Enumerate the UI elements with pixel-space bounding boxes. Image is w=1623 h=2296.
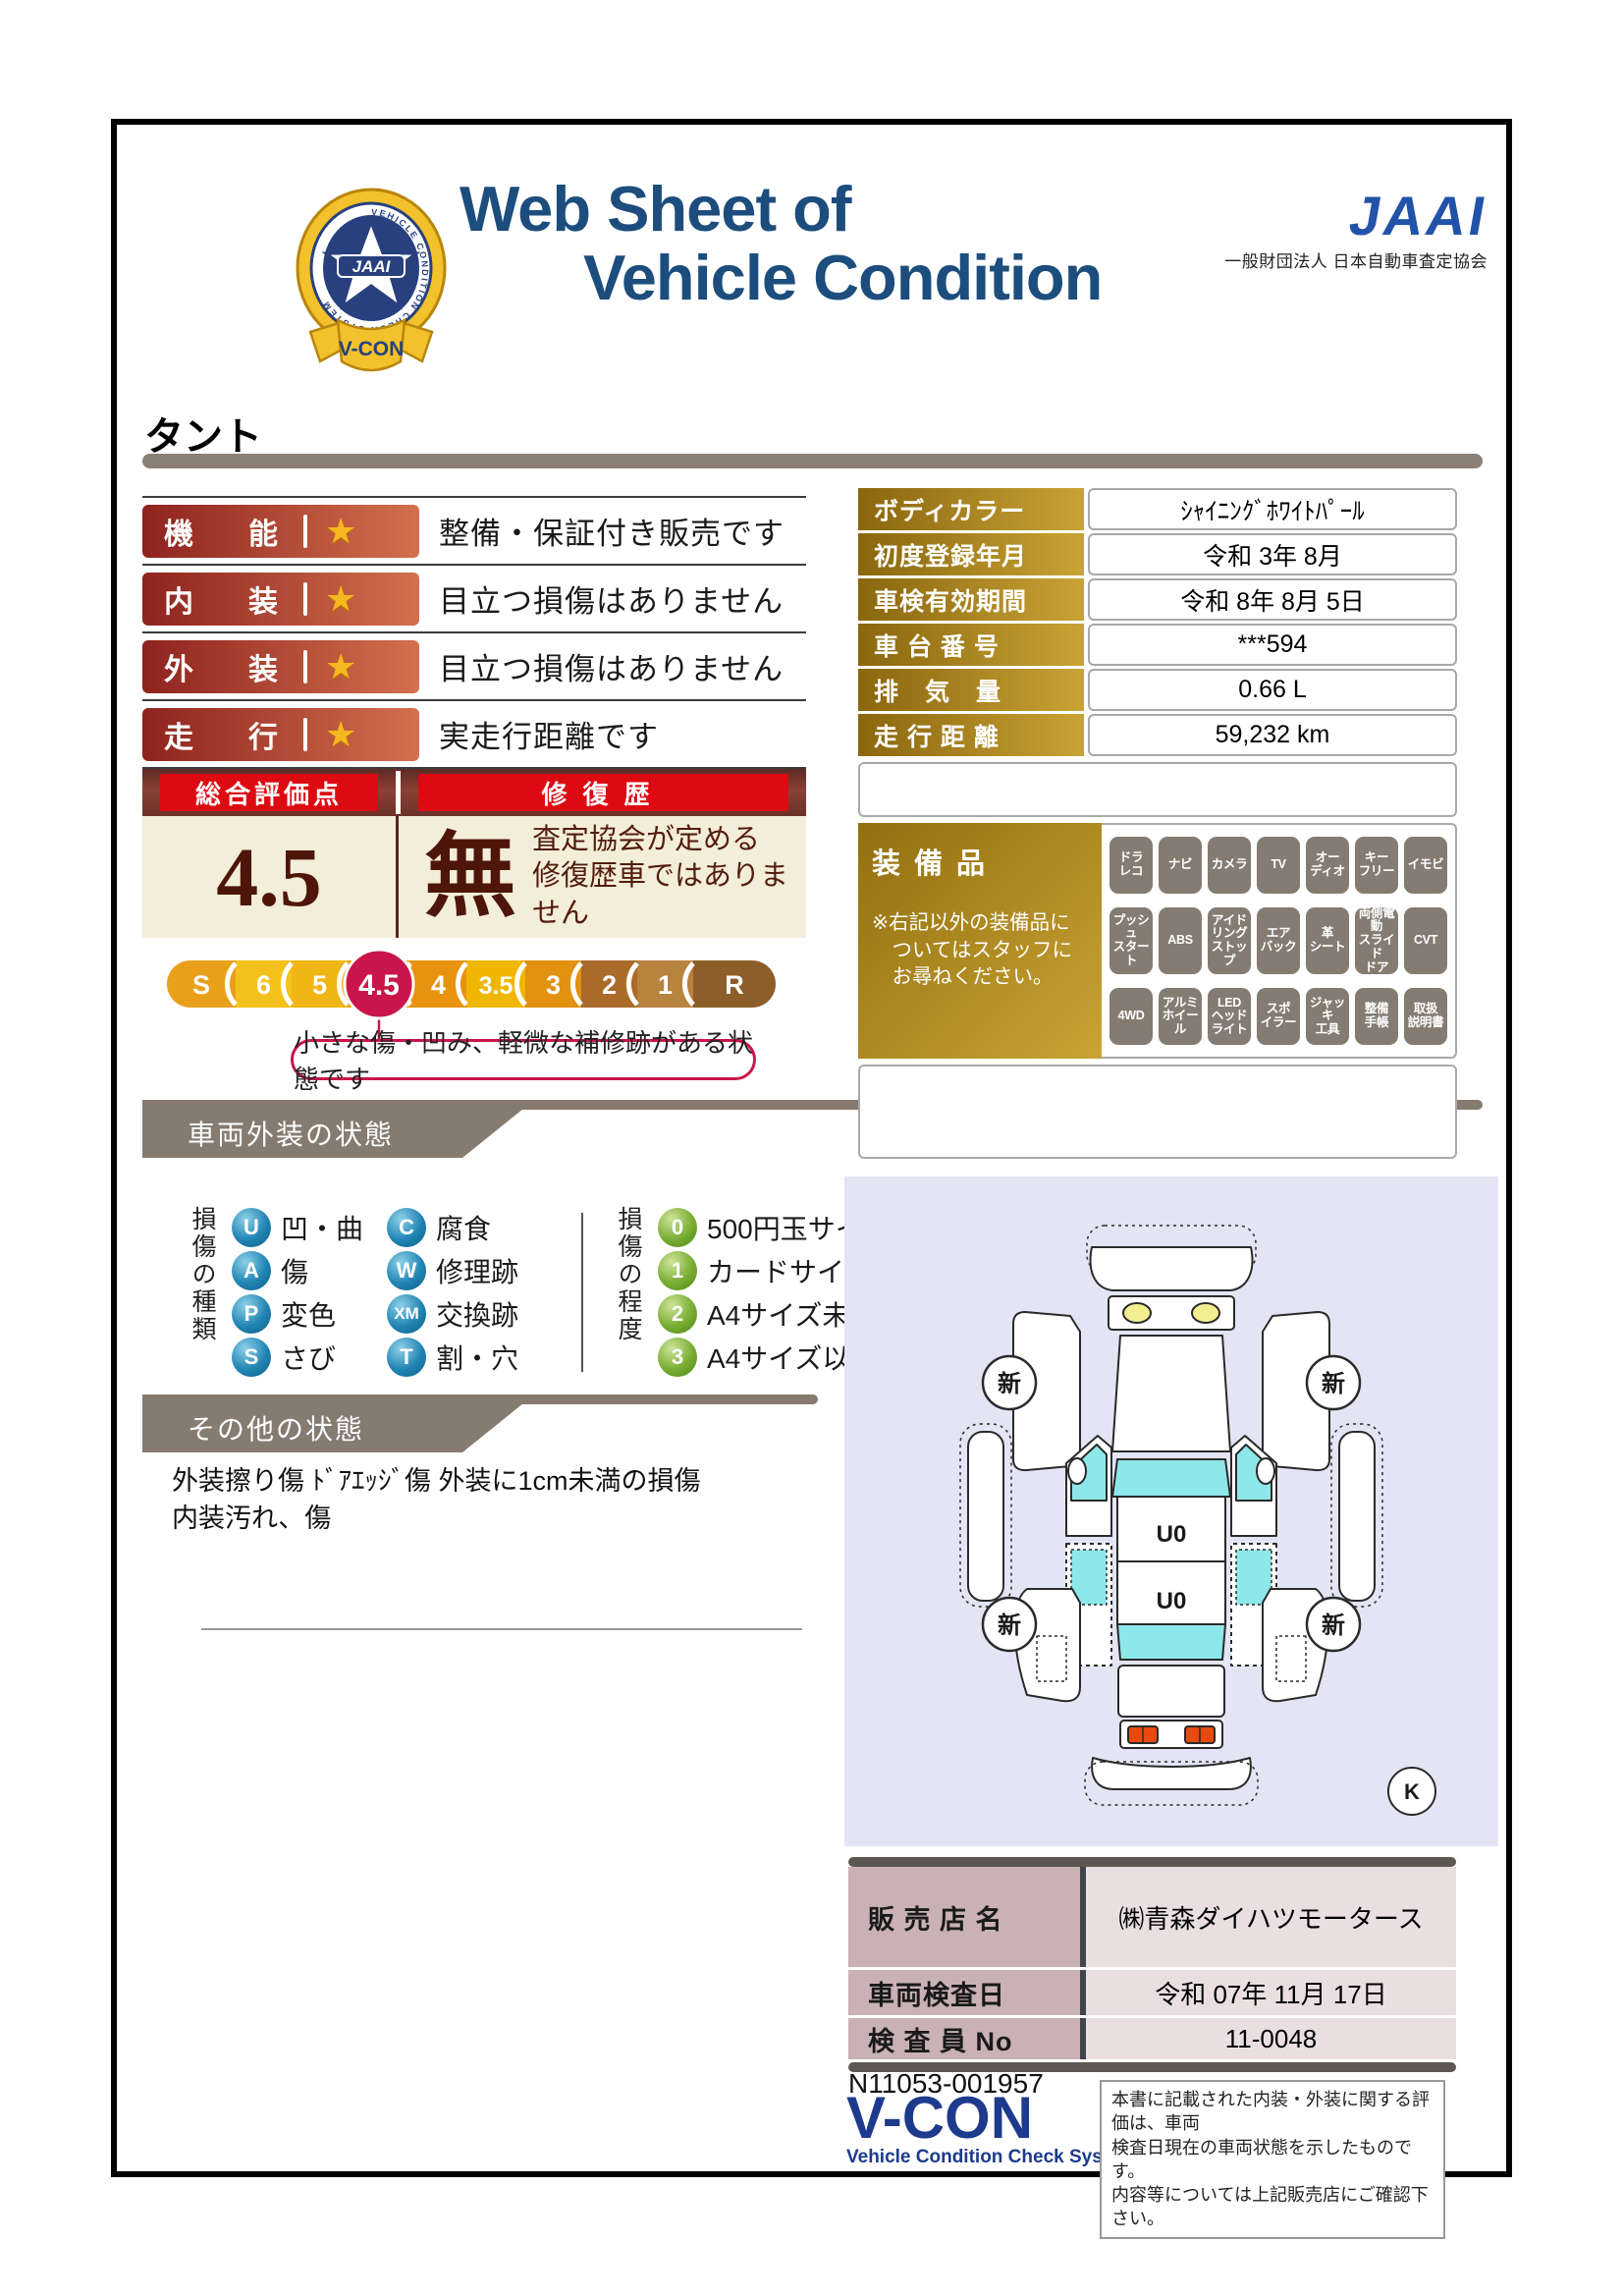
- overall-score-label: 総合評価点: [195, 775, 343, 811]
- equipment-badge-line: 両側電動: [1355, 907, 1398, 935]
- rating-row: 外装★目立つ損傷はありません: [142, 631, 806, 699]
- detail-value: 令和 3年 8月: [1088, 533, 1457, 575]
- equipment-badge-line: ストップ: [1208, 941, 1251, 968]
- equipment-badge: エアバック: [1257, 907, 1300, 975]
- damage-type-icon: A: [232, 1251, 271, 1290]
- badge-divider: [303, 650, 307, 683]
- rating-label-char: 外: [164, 645, 193, 688]
- scale-segment-label: 2: [602, 970, 617, 1000]
- damage-type-icon: S: [232, 1338, 271, 1377]
- other-note-line: 外装擦り傷 ﾄﾞｱｴｯｼﾞ傷 外装に1cm未満の損傷: [172, 1463, 701, 1501]
- rating-label-char: 装: [248, 645, 278, 688]
- dealer-row: 検 査 員 No11-0048: [848, 2018, 1456, 2062]
- windshield: [1112, 1459, 1230, 1497]
- equipment-badge-line: ヘッド: [1212, 1010, 1248, 1023]
- dealer-row-value: ㈱青森ダイハツモータース: [1086, 1867, 1456, 1967]
- wheel-new-mark: 新: [998, 1612, 1021, 1639]
- rating-label: 機能: [164, 510, 278, 553]
- star-icon: ★: [325, 581, 356, 617]
- jaai-logo: JAAI 一般財団法人 日本自動車査定協会: [1203, 189, 1488, 272]
- equipment-note-line: ついてはスタッフに: [872, 937, 1088, 964]
- k-badge-text: K: [1404, 1779, 1420, 1804]
- damage-type-item: T割・穴: [387, 1336, 518, 1379]
- damage-degree-icon: 1: [658, 1251, 697, 1290]
- equipment-title: 装備品: [872, 841, 1088, 882]
- damage-type-name: 傷: [281, 1251, 308, 1290]
- rating-label: 走行: [164, 713, 278, 756]
- grade-callout: 小さな傷・凹み、軽微な補修跡がある状態です: [291, 1039, 756, 1080]
- banner-title: 車両外装の状態: [142, 1109, 523, 1158]
- damage-mark-u0: U0: [1157, 1521, 1187, 1548]
- equipment-badge: 革シート: [1306, 907, 1349, 975]
- scale-segment-label: 1: [658, 970, 673, 1000]
- equipment-badge: 両側電動スライドドア: [1355, 907, 1398, 975]
- detail-value: 0.66 L: [1088, 669, 1457, 711]
- damage-type-items: U凹・曲A傷P変色SさびC腐食W修理跡XM交換跡T割・穴: [232, 1206, 518, 1379]
- dealer-row-value: 令和 07年 11月 17日: [1086, 1970, 1456, 2015]
- damage-type-legend: 損傷の種類 U凹・曲A傷P変色SさびC腐食W修理跡XM交換跡T割・穴: [185, 1206, 518, 1379]
- detail-label: ボディカラー: [858, 488, 1084, 530]
- disclaimer-line: 本書に記載された内装・外装に関する評価は、車両: [1111, 2088, 1434, 2136]
- detail-label: 初度登録年月: [858, 533, 1084, 575]
- damage-type-icon: U: [232, 1208, 271, 1247]
- equipment-badge: プッシュスタート: [1109, 907, 1153, 975]
- detail-label: 車検有効期間: [858, 578, 1084, 621]
- damage-type-icon: P: [232, 1294, 271, 1334]
- damage-type-icon: XM: [387, 1294, 426, 1334]
- notes-underline: [201, 1628, 802, 1630]
- repair-note-line2: 修復歴車ではありません: [532, 858, 806, 931]
- detail-row: ボディカラーｼｬｲﾆﾝｸﾞﾎﾜｲﾄﾊﾟｰﾙ: [858, 488, 1457, 530]
- equipment-badge-line: ナビ: [1168, 858, 1192, 872]
- detail-value: 令和 8年 8月 5日: [1088, 578, 1457, 621]
- equipment-badge: 整備手帳: [1355, 988, 1398, 1045]
- detail-row: 走 行 距 離59,232 km: [858, 714, 1457, 756]
- scale-segment-label: 6: [256, 970, 271, 1000]
- repair-history-header: 修復歴: [401, 769, 806, 816]
- equipment-badge-line: スポ: [1267, 1003, 1290, 1016]
- front-bumper: [1091, 1247, 1253, 1290]
- headlight-icon: [1123, 1303, 1151, 1323]
- equipment-badge: 取扱説明書: [1404, 988, 1447, 1045]
- empty-equipment-box: [858, 1065, 1457, 1159]
- damage-type-name: 変色: [281, 1294, 336, 1334]
- equipment-badge: アルミホイール: [1159, 988, 1202, 1045]
- damage-type-item: P変色: [232, 1292, 363, 1336]
- rating-badge: 内装★: [142, 573, 419, 626]
- scale-highlight-value: 4.5: [358, 969, 400, 1002]
- rating-badge: 外装★: [142, 640, 419, 693]
- damage-type-name: 割・穴: [436, 1338, 518, 1377]
- equipment-badge: オーディオ: [1306, 837, 1349, 894]
- star-icon: ★: [325, 514, 356, 549]
- rating-caption: 目立つ損傷はありません: [439, 644, 784, 688]
- car-damage-diagram: 新 新 新 新 U0 U0 K: [844, 1176, 1498, 1846]
- disclaimer-text: 本書に記載された内装・外装に関する評価は、車両検査日現在の車両状態を示したもので…: [1100, 2080, 1445, 2239]
- equipment-badge-line: 手帳: [1365, 1016, 1388, 1030]
- detail-value: 59,232 km: [1088, 714, 1457, 756]
- banner-title: その他の状態: [142, 1403, 523, 1452]
- hood: [1112, 1336, 1230, 1451]
- side-sill: [968, 1432, 1003, 1601]
- detail-value: ***594: [1088, 624, 1457, 666]
- title-line2: Vehicle Condition: [583, 244, 1102, 312]
- equipment-badge-line: レコ: [1119, 865, 1143, 879]
- equipment-badge-line: 説明書: [1408, 1016, 1444, 1030]
- dealer-row: 販 売 店 名㈱青森ダイハツモータース: [848, 1867, 1456, 1970]
- vcon-footer-logo: V-CON: [846, 2090, 1033, 2146]
- equipment-header-panel: 装備品 ※右記以外の装備品に ついてはスタッフに お尋ねください。: [858, 823, 1102, 1059]
- damage-type-item: C腐食: [387, 1206, 518, 1249]
- damage-degree-label: 損傷の程度: [611, 1206, 646, 1379]
- other-note-line: 内装汚れ、傷: [172, 1501, 701, 1538]
- equipment-badge: ナビ: [1159, 837, 1202, 894]
- damage-degree-icon: 0: [658, 1208, 697, 1247]
- table-top-bar: [848, 1857, 1456, 1867]
- equipment-badge: カメラ: [1208, 837, 1251, 894]
- damage-type-item: Sさび: [232, 1336, 363, 1379]
- disclaimer-line: 検査日現在の車両状態を示したものです。: [1111, 2136, 1434, 2184]
- equipment-note-line: お尋ねください。: [872, 963, 1088, 991]
- wheel-new-mark: 新: [1322, 1370, 1345, 1397]
- scale-segment-label: 3.5: [479, 972, 514, 1000]
- badge-jaai-text: JAAI: [352, 257, 392, 276]
- equipment-section: 装備品 ※右記以外の装備品に ついてはスタッフに お尋ねください。 ドラレコナビ…: [858, 823, 1457, 1059]
- banner-bar: [142, 1394, 818, 1404]
- detail-value: ｼｬｲﾆﾝｸﾞﾎﾜｲﾄﾊﾟｰﾙ: [1088, 488, 1457, 530]
- rating-label-char: 走: [164, 713, 193, 756]
- wheel-new-mark: 新: [1322, 1612, 1345, 1639]
- damage-type-item: XM交換跡: [387, 1292, 518, 1336]
- equipment-badge: キーフリー: [1355, 837, 1398, 894]
- detail-label: 排 気 量: [858, 669, 1084, 711]
- equipment-badge-line: ホイール: [1159, 1010, 1202, 1037]
- equipment-badge: 4WD: [1109, 988, 1153, 1045]
- equipment-badge-line: プッシュ: [1109, 914, 1153, 942]
- equipment-badge: ABS: [1159, 907, 1202, 975]
- equipment-badge: イモビ: [1404, 837, 1447, 894]
- scale-segment-label: 4: [431, 970, 446, 1000]
- equipment-badge-line: 工具: [1316, 1023, 1339, 1037]
- star-icon: ★: [325, 717, 356, 752]
- rating-caption: 整備・保証付き販売です: [439, 509, 784, 553]
- equipment-badge-line: イモビ: [1408, 858, 1444, 872]
- vehicle-details-table: ボディカラーｼｬｲﾆﾝｸﾞﾎﾜｲﾄﾊﾟｰﾙ初度登録年月令和 3年 8月車検有効期…: [858, 488, 1457, 756]
- rear-window: [1117, 1624, 1225, 1660]
- equipment-badge-line: ドア: [1365, 961, 1388, 975]
- dealer-row-label: 検 査 員 No: [848, 2018, 1086, 2059]
- damage-mark-u0: U0: [1157, 1588, 1187, 1614]
- rating-badge: 走行★: [142, 708, 419, 761]
- equipment-badge-line: スタート: [1109, 941, 1153, 968]
- equipment-badge-line: 革: [1322, 927, 1333, 941]
- detail-row: 初度登録年月令和 3年 8月: [858, 533, 1457, 575]
- scale-segment-label: R: [725, 970, 744, 1000]
- damage-type-name: さび: [281, 1338, 336, 1377]
- rating-row: 走行★実走行距離です: [142, 699, 806, 767]
- dealer-row-value: 11-0048: [1086, 2018, 1456, 2059]
- damage-type-name: 腐食: [436, 1208, 491, 1247]
- detail-row: 車 台 番 号***594: [858, 624, 1457, 666]
- equipment-badge-line: ジャッキ: [1306, 997, 1349, 1024]
- equipment-badge-line: カメラ: [1212, 858, 1248, 872]
- equipment-badge-line: LED: [1217, 997, 1241, 1011]
- equipment-badge-line: イラー: [1261, 1016, 1297, 1030]
- rating-label-char: 装: [248, 577, 278, 621]
- detail-row: 車検有効期間令和 8年 8月 5日: [858, 578, 1457, 621]
- equipment-badge-line: TV: [1271, 858, 1285, 872]
- rating-label: 内装: [164, 577, 278, 621]
- equipment-note-line: ※右記以外の装備品に: [872, 909, 1088, 937]
- equipment-badge: アイドリングストップ: [1208, 907, 1251, 975]
- equipment-badge: LEDヘッドライト: [1208, 988, 1251, 1045]
- rating-caption: 実走行距離です: [439, 712, 659, 756]
- damage-degree-icon: 2: [658, 1294, 697, 1334]
- damage-type-name: 凹・曲: [281, 1208, 363, 1247]
- equipment-badge: ジャッキ工具: [1306, 988, 1349, 1045]
- equipment-badge-line: ディオ: [1310, 865, 1345, 879]
- equipment-badge-line: アルミ: [1163, 997, 1198, 1011]
- damage-degree-icon: 3: [658, 1338, 697, 1377]
- overall-evaluation-box: 総合評価点 修復歴 4.5 無 査定協会が定める 修復歴車ではありません: [142, 769, 806, 938]
- damage-type-icon: W: [387, 1251, 426, 1290]
- damage-type-name: 修理跡: [436, 1251, 518, 1290]
- equipment-badge-line: バック: [1261, 941, 1297, 955]
- tailgate: [1118, 1666, 1224, 1717]
- equipment-badge-line: エア: [1267, 927, 1290, 941]
- detail-row: 排 気 量0.66 L: [858, 669, 1457, 711]
- rating-label-char: 能: [248, 510, 278, 553]
- detail-label: 車 台 番 号: [858, 624, 1084, 666]
- badge-divider: [303, 718, 307, 751]
- repair-history-label: 修復歴: [541, 775, 665, 811]
- equipment-badge-line: キー: [1365, 851, 1388, 865]
- scale-segment-label: 3: [546, 970, 561, 1000]
- disclaimer-line: 内容等については上記販売店にご確認下さい。: [1111, 2183, 1434, 2231]
- divider-bar: [142, 454, 1483, 468]
- damage-type-item: W修理跡: [387, 1249, 518, 1292]
- headlight-icon: [1192, 1303, 1219, 1323]
- damage-type-icon: C: [387, 1208, 426, 1247]
- equipment-badge-line: リング: [1212, 927, 1248, 941]
- dealer-rows: 販 売 店 名㈱青森ダイハツモータース車両検査日令和 07年 11月 17日検 …: [848, 1867, 1456, 2062]
- badge-divider: [303, 582, 307, 616]
- rating-badge: 機能★: [142, 505, 419, 558]
- wheel-new-mark: 新: [998, 1370, 1021, 1397]
- vcon-footer-subtitle: Vehicle Condition Check System: [846, 2147, 1136, 2168]
- equipment-badge-line: シート: [1310, 941, 1346, 955]
- repair-history-note: 査定協会が定める 修復歴車ではありません: [532, 822, 806, 931]
- dealer-row-label: 車両検査日: [848, 1970, 1086, 2015]
- rating-label: 外装: [164, 645, 278, 688]
- dealer-row: 車両検査日令和 07年 11月 17日: [848, 1970, 1456, 2018]
- repair-note-line1: 査定協会が定める: [532, 822, 806, 858]
- equipment-badge: ドラレコ: [1109, 837, 1153, 894]
- empty-detail-box: [858, 762, 1457, 817]
- legend-divider: [581, 1213, 583, 1372]
- jaai-organization: 一般財団法人 日本自動車査定協会: [1203, 247, 1488, 272]
- overall-score-header: 総合評価点: [142, 769, 396, 816]
- rating-label-char: 内: [164, 577, 193, 621]
- overall-score-value: 4.5: [142, 816, 396, 938]
- jaai-logo-text: JAAI: [1198, 189, 1492, 244]
- damage-type-item: A傷: [232, 1249, 363, 1292]
- rating-label-char: 機: [164, 510, 193, 553]
- vehicle-condition-sheet: VEHICLE CONDITION CHECK SYSTEM JAAI V-CO…: [0, 0, 1623, 2296]
- equipment-badge: スポイラー: [1257, 988, 1300, 1045]
- repair-history-body: 無 査定協会が定める 修復歴車ではありません: [399, 816, 806, 938]
- damage-type-item: U凹・曲: [232, 1206, 363, 1249]
- equipment-badge-line: CVT: [1414, 934, 1437, 948]
- equipment-badge-line: ドラ: [1119, 851, 1143, 865]
- scale-segment-label: 5: [312, 970, 327, 1000]
- star-icon: ★: [325, 649, 356, 684]
- equipment-badge: TV: [1257, 837, 1300, 894]
- rating-row: 機能★整備・保証付き販売です: [142, 496, 806, 564]
- rating-caption: 目立つ損傷はありません: [439, 576, 784, 621]
- overall-header: 総合評価点 修復歴: [142, 769, 806, 816]
- section-banner-other: その他の状態: [142, 1394, 818, 1452]
- door-mirror: [1068, 1458, 1086, 1484]
- damage-type-name: 交換跡: [436, 1294, 518, 1334]
- other-condition-notes: 外装擦り傷 ﾄﾞｱｴｯｼﾞ傷 外装に1cm未満の損傷内装汚れ、傷: [172, 1463, 701, 1538]
- repair-history-mark: 無: [424, 836, 516, 919]
- equipment-note: ※右記以外の装備品に ついてはスタッフに お尋ねください。: [872, 909, 1088, 991]
- equipment-badge-line: ABS: [1167, 934, 1193, 948]
- damage-type-label: 損傷の種類: [185, 1206, 220, 1379]
- equipment-grid: ドラレコナビカメラTVオーディオキーフリーイモビプッシュスタートABSアイドリン…: [1102, 823, 1457, 1059]
- badge-vcon-text: V-CON: [339, 338, 405, 360]
- equipment-badge-line: スライド: [1355, 934, 1398, 961]
- equipment-badge-line: ライト: [1212, 1023, 1248, 1037]
- scale-segment-label: S: [192, 970, 210, 1000]
- title-line1: Web Sheet of: [460, 175, 1102, 244]
- vcon-badge-logo: VEHICLE CONDITION CHECK SYSTEM JAAI V-CO…: [293, 185, 450, 386]
- rating-row: 内装★目立つ損傷はありません: [142, 564, 806, 631]
- badge-divider: [303, 515, 307, 548]
- detail-label: 走 行 距 離: [858, 714, 1084, 756]
- equipment-badge-line: フリー: [1359, 865, 1395, 879]
- equipment-badge: CVT: [1404, 907, 1447, 975]
- dealer-row-label: 販 売 店 名: [848, 1867, 1086, 1967]
- rating-rows: 機能★整備・保証付き販売です内装★目立つ損傷はありません外装★目立つ損傷はありま…: [142, 496, 806, 769]
- equipment-badge-line: 4WD: [1118, 1010, 1145, 1023]
- damage-type-icon: T: [387, 1338, 426, 1377]
- equipment-badge-line: オー: [1316, 851, 1339, 865]
- page-title: Web Sheet of Vehicle Condition: [460, 175, 1102, 312]
- dealer-table: 販 売 店 名㈱青森ダイハツモータース車両検査日令和 07年 11月 17日検 …: [848, 1857, 1456, 2072]
- rating-label-char: 行: [248, 713, 278, 756]
- overall-body: 4.5 無 査定協会が定める 修復歴車ではありません: [142, 816, 806, 938]
